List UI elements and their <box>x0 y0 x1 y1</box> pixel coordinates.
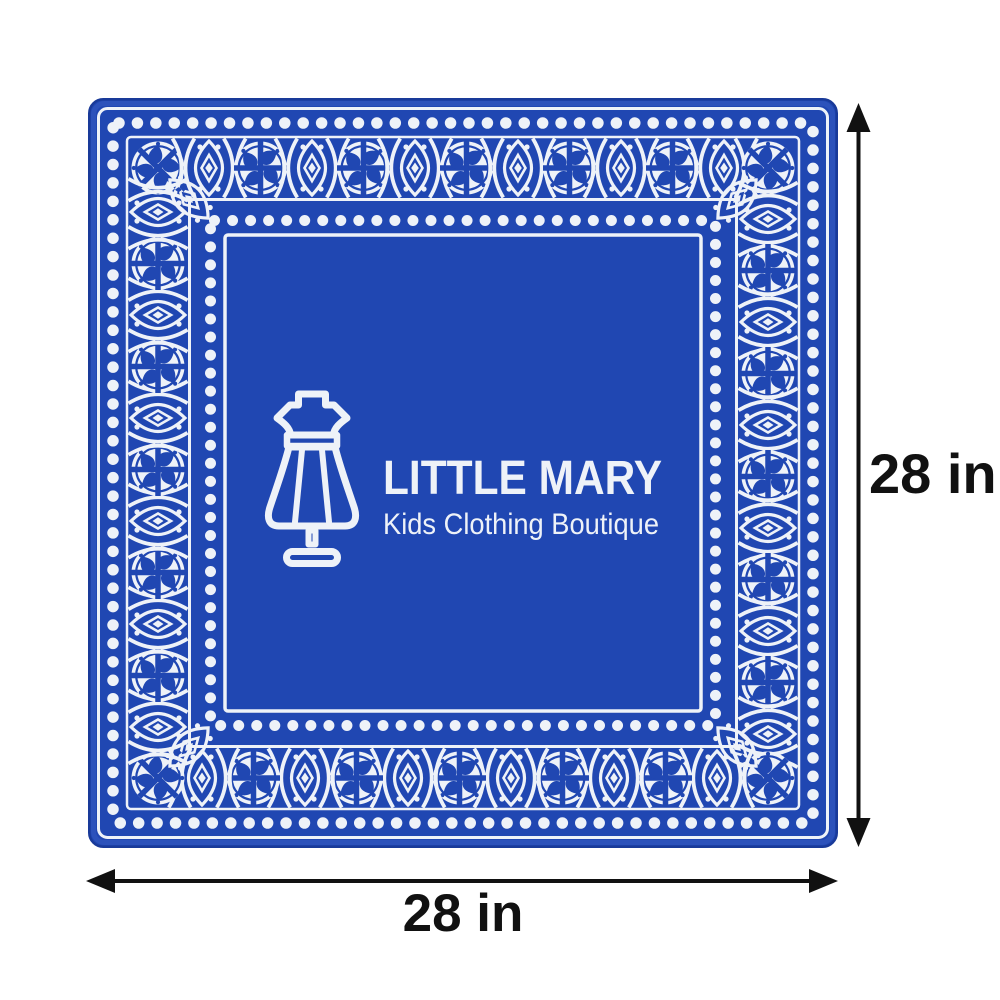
height-dimension-label: 28 in <box>869 446 997 502</box>
bandana-design: LITTLE MARY Kids Clothing Boutique <box>88 98 838 848</box>
brand-name-text: LITTLE MARY <box>383 452 662 505</box>
product-mockup-page: LITTLE MARY Kids Clothing Boutique 28 in… <box>0 0 1000 1000</box>
height-dimension-arrow <box>847 103 871 847</box>
brand-tagline-text: Kids Clothing Boutique <box>383 508 659 541</box>
width-dimension-label: 28 in <box>88 887 838 940</box>
